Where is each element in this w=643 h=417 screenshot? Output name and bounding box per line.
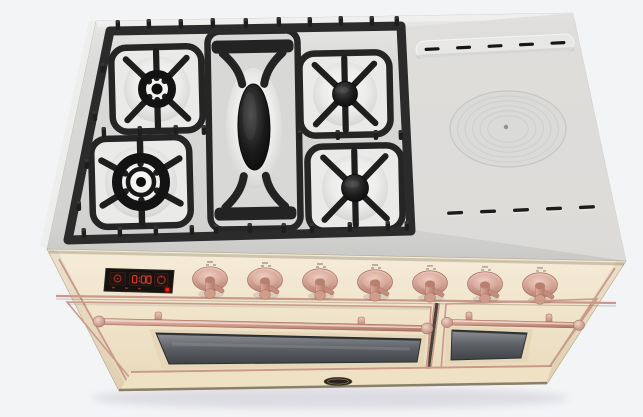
vent-slot [480, 209, 496, 213]
cooktop [40, 13, 626, 261]
vent-slot [546, 207, 562, 211]
knob-tip [535, 295, 546, 305]
range-cooker-render [0, 0, 643, 417]
grate-post [385, 221, 390, 231]
grate-post [347, 222, 352, 232]
knob-tip [425, 293, 436, 303]
front-left-burner [91, 137, 191, 228]
grate-post [173, 125, 178, 135]
grate-post [101, 127, 106, 137]
gas-burner-section [68, 16, 411, 240]
rear-right-burner [299, 52, 391, 136]
knob-tip [260, 290, 271, 300]
grate-post [153, 226, 158, 236]
burner-cap [341, 174, 369, 202]
grate-post [84, 159, 89, 169]
simmer-plate [450, 91, 566, 167]
grate-post [307, 17, 312, 27]
grate-post [394, 16, 399, 26]
indicator-light [112, 287, 115, 289]
knob-tip [315, 291, 326, 301]
simmer-plate-center [504, 125, 508, 129]
griddle-burner [207, 30, 300, 230]
rear-left-burner [111, 46, 203, 132]
knob-tip [205, 289, 216, 299]
grate-post [92, 111, 97, 121]
vent-slot [579, 205, 595, 209]
grate-post [404, 221, 409, 231]
grate-post [81, 228, 86, 238]
product-image-stage [0, 0, 643, 417]
grate-post [335, 130, 340, 140]
grate-post [338, 16, 343, 26]
grate-post [100, 63, 105, 73]
grate-post [137, 126, 142, 136]
indicator-light [125, 287, 128, 289]
grate-post [281, 223, 286, 233]
grate-post [201, 125, 206, 135]
right-oven-window [451, 330, 527, 360]
knob-tip [370, 292, 381, 302]
vent-slot [447, 211, 463, 215]
grate-post [373, 130, 378, 140]
brand-badge [324, 377, 352, 385]
grate-post [369, 16, 374, 26]
indicator-light [138, 288, 141, 290]
grate-post [243, 18, 248, 28]
grate-post [178, 19, 183, 29]
grate-post [276, 17, 281, 27]
grate-post [189, 225, 194, 235]
grate-post [76, 201, 81, 211]
grate-post [213, 224, 218, 234]
grate-post [210, 18, 215, 28]
grate-post [398, 130, 403, 140]
front-right-burner [307, 145, 403, 231]
grate-post [115, 20, 120, 30]
front-panel [47, 249, 626, 391]
grate-post [146, 19, 151, 29]
grate-post [117, 227, 122, 237]
grate-post [297, 130, 302, 140]
grate-post [309, 223, 314, 233]
vent-slot [513, 208, 529, 212]
burner-cap [332, 81, 358, 107]
grate-post [247, 223, 252, 233]
oven-clock-display [104, 269, 174, 294]
